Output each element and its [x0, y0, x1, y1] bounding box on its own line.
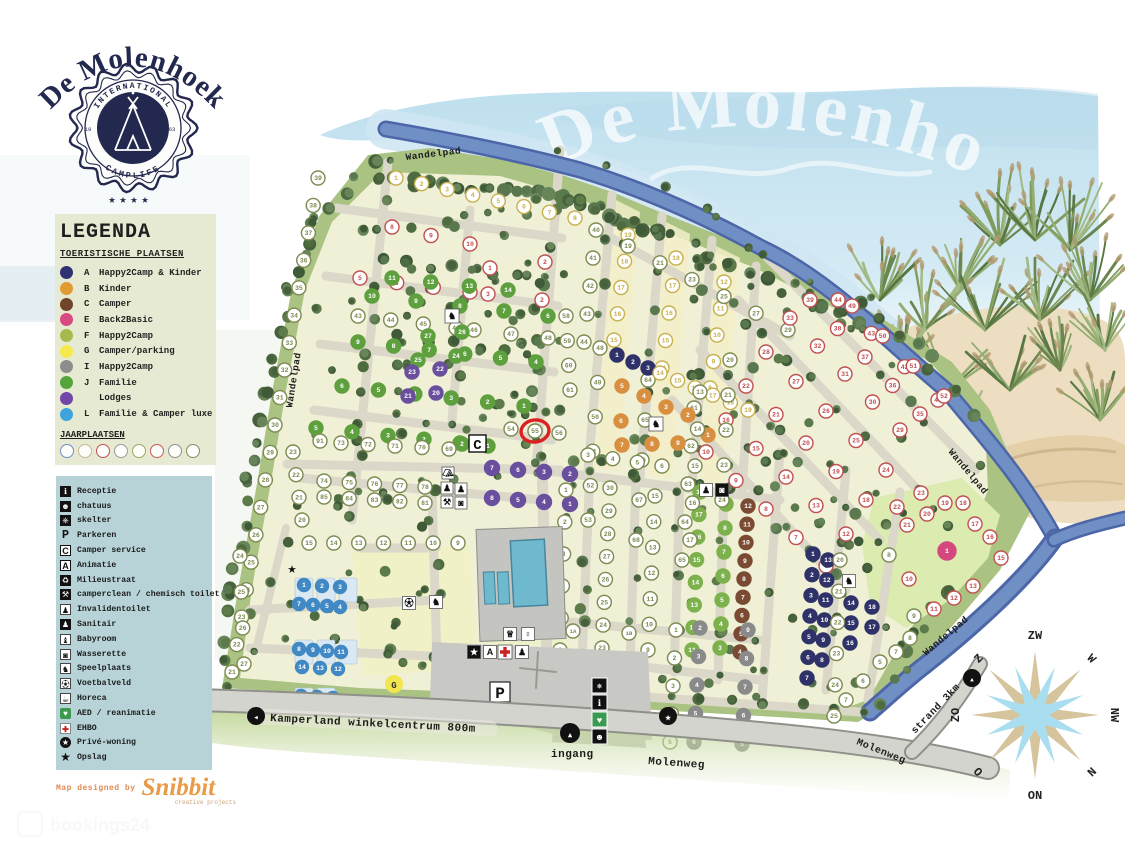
- svg-text:8: 8: [490, 495, 494, 502]
- svg-text:1: 1: [568, 501, 572, 508]
- svg-text:83: 83: [371, 497, 379, 504]
- svg-text:34: 34: [290, 312, 298, 319]
- svg-text:27: 27: [424, 333, 432, 340]
- svg-text:6: 6: [861, 678, 865, 685]
- svg-text:44: 44: [834, 297, 842, 304]
- svg-text:60: 60: [565, 362, 573, 369]
- svg-text:★: ★: [470, 647, 479, 657]
- svg-text:15: 15: [997, 555, 1005, 562]
- svg-text:33: 33: [786, 315, 794, 322]
- svg-text:9: 9: [746, 627, 750, 634]
- svg-text:32: 32: [814, 343, 822, 350]
- svg-text:22: 22: [893, 504, 901, 511]
- svg-text:6: 6: [522, 204, 526, 211]
- svg-text:41: 41: [589, 255, 597, 262]
- svg-text:5: 5: [878, 659, 882, 666]
- svg-text:20: 20: [923, 511, 931, 518]
- svg-text:4: 4: [695, 682, 699, 689]
- svg-text:26: 26: [239, 625, 247, 632]
- svg-text:23: 23: [917, 490, 925, 497]
- svg-text:11: 11: [646, 596, 654, 603]
- svg-text:14: 14: [330, 540, 338, 547]
- svg-text:23: 23: [688, 277, 696, 284]
- svg-text:75: 75: [345, 480, 353, 487]
- svg-text:9: 9: [712, 359, 716, 366]
- svg-text:59: 59: [563, 338, 571, 345]
- svg-text:27: 27: [792, 379, 800, 386]
- svg-text:2: 2: [320, 583, 324, 590]
- svg-text:21: 21: [656, 260, 664, 267]
- svg-text:2: 2: [568, 471, 572, 478]
- svg-text:16: 16: [689, 500, 697, 507]
- svg-text:6: 6: [516, 467, 520, 474]
- svg-text:14: 14: [656, 370, 664, 377]
- svg-text:73: 73: [337, 440, 345, 447]
- svg-text:ingang: ingang: [551, 749, 594, 761]
- svg-text:20: 20: [836, 557, 844, 564]
- svg-text:38: 38: [834, 326, 842, 333]
- svg-text:6: 6: [721, 573, 725, 580]
- svg-text:69: 69: [445, 446, 453, 453]
- svg-text:2: 2: [673, 655, 677, 662]
- svg-text:7: 7: [844, 697, 848, 704]
- svg-text:2: 2: [686, 412, 690, 419]
- svg-text:1: 1: [945, 548, 949, 555]
- svg-text:36: 36: [889, 383, 897, 390]
- svg-text:22: 22: [292, 472, 300, 479]
- svg-text:29: 29: [896, 427, 904, 434]
- svg-text:24: 24: [452, 353, 460, 360]
- svg-text:4: 4: [350, 429, 354, 436]
- svg-text:5: 5: [325, 603, 329, 610]
- svg-text:12: 12: [744, 503, 752, 510]
- svg-text:13: 13: [316, 665, 324, 672]
- svg-text:28: 28: [604, 531, 612, 538]
- svg-text:3: 3: [664, 404, 668, 411]
- svg-text:29: 29: [605, 508, 613, 515]
- svg-text:37: 37: [304, 230, 312, 237]
- svg-text:63: 63: [169, 126, 176, 133]
- svg-text:3: 3: [671, 683, 675, 690]
- svg-text:10: 10: [429, 540, 437, 547]
- svg-text:6: 6: [660, 463, 664, 470]
- svg-text:25: 25: [247, 559, 255, 566]
- svg-text:15: 15: [674, 378, 682, 385]
- svg-text:♞: ♞: [432, 597, 440, 607]
- svg-text:3: 3: [386, 433, 390, 440]
- svg-text:64: 64: [681, 519, 689, 526]
- svg-text:26: 26: [822, 408, 830, 415]
- svg-text:2: 2: [810, 572, 814, 579]
- svg-text:ℹ: ℹ: [598, 699, 602, 709]
- svg-text:P: P: [495, 685, 505, 703]
- svg-text:10: 10: [905, 576, 913, 583]
- svg-text:8: 8: [908, 635, 912, 642]
- svg-text:4: 4: [808, 613, 812, 620]
- svg-text:31: 31: [841, 371, 849, 378]
- svg-text:♟︎: ♟︎: [457, 484, 465, 494]
- svg-text:6: 6: [546, 313, 550, 320]
- svg-text:40: 40: [592, 227, 600, 234]
- svg-text:30: 30: [869, 399, 877, 406]
- svg-text:7: 7: [297, 601, 301, 608]
- svg-text:25: 25: [720, 294, 728, 301]
- svg-text:3: 3: [646, 365, 650, 372]
- svg-text:1: 1: [706, 432, 710, 439]
- svg-text:3: 3: [486, 291, 490, 298]
- svg-text:17: 17: [868, 624, 876, 631]
- svg-text:17: 17: [971, 521, 979, 528]
- svg-text:13: 13: [465, 283, 473, 290]
- svg-text:6: 6: [806, 654, 810, 661]
- svg-text:39: 39: [314, 175, 322, 182]
- svg-text:A: A: [487, 647, 494, 657]
- svg-text:25: 25: [414, 357, 422, 364]
- svg-text:14: 14: [782, 474, 790, 481]
- svg-text:8: 8: [745, 656, 749, 663]
- svg-text:7: 7: [743, 684, 747, 691]
- svg-text:47: 47: [507, 331, 515, 338]
- svg-text:14: 14: [694, 426, 702, 433]
- svg-text:8: 8: [392, 343, 396, 350]
- svg-text:9: 9: [734, 478, 738, 485]
- svg-text:1: 1: [302, 582, 306, 589]
- svg-text:19: 19: [832, 469, 840, 476]
- svg-text:♞: ♞: [845, 576, 853, 586]
- svg-text:11: 11: [930, 606, 938, 613]
- svg-text:32: 32: [281, 367, 289, 374]
- svg-text:14: 14: [298, 664, 306, 671]
- svg-text:31: 31: [276, 395, 284, 402]
- svg-text:20: 20: [298, 517, 306, 524]
- svg-text:11: 11: [717, 306, 725, 313]
- svg-text:18: 18: [959, 500, 967, 507]
- svg-text:76: 76: [371, 481, 379, 488]
- svg-text:52: 52: [940, 393, 948, 400]
- svg-text:21: 21: [835, 588, 843, 595]
- svg-text:13: 13: [696, 389, 704, 396]
- svg-text:24: 24: [831, 682, 839, 689]
- svg-text:12: 12: [823, 577, 831, 584]
- svg-text:49: 49: [594, 380, 602, 387]
- svg-text:5: 5: [376, 387, 380, 394]
- svg-text:23: 23: [408, 369, 416, 376]
- svg-text:9: 9: [429, 233, 433, 240]
- svg-text:15: 15: [651, 493, 659, 500]
- svg-text:91: 91: [316, 438, 324, 445]
- svg-text:★: ★: [119, 193, 126, 207]
- svg-text:4: 4: [542, 499, 546, 506]
- svg-text:25: 25: [852, 438, 860, 445]
- svg-text:15: 15: [305, 540, 313, 547]
- svg-text:23: 23: [720, 462, 728, 469]
- svg-text:♞: ♞: [652, 419, 660, 429]
- svg-text:22: 22: [742, 383, 750, 390]
- svg-text:★: ★: [287, 561, 296, 578]
- svg-text:6: 6: [742, 713, 746, 720]
- svg-text:10: 10: [466, 241, 474, 248]
- svg-text:4: 4: [338, 604, 342, 611]
- svg-text:82: 82: [396, 499, 404, 506]
- svg-text:1: 1: [564, 487, 568, 494]
- svg-text:2: 2: [631, 359, 635, 366]
- svg-text:3: 3: [809, 592, 813, 599]
- svg-text:5: 5: [720, 597, 724, 604]
- svg-text:⚒︎: ⚒︎: [443, 497, 451, 507]
- svg-text:14: 14: [504, 287, 512, 294]
- svg-text:5: 5: [516, 497, 520, 504]
- svg-text:12: 12: [334, 666, 342, 673]
- svg-text:37: 37: [861, 354, 869, 361]
- svg-text:4: 4: [611, 456, 615, 463]
- svg-text:19: 19: [624, 243, 632, 250]
- svg-text:▴: ▴: [567, 730, 574, 742]
- svg-text:54: 54: [507, 426, 515, 433]
- svg-text:♥: ♥: [597, 716, 602, 726]
- svg-text:10: 10: [645, 621, 653, 628]
- svg-text:⚽︎: ⚽︎: [404, 597, 413, 608]
- svg-text:84: 84: [345, 496, 353, 503]
- svg-text:12: 12: [380, 540, 388, 547]
- svg-text:13: 13: [649, 544, 657, 551]
- svg-text:24: 24: [236, 553, 244, 560]
- svg-text:26: 26: [458, 329, 466, 336]
- svg-text:21: 21: [295, 494, 303, 501]
- svg-text:27: 27: [240, 661, 248, 668]
- svg-text:4: 4: [642, 393, 646, 400]
- svg-text:7: 7: [805, 675, 809, 682]
- svg-text:16: 16: [846, 640, 854, 647]
- svg-text:27: 27: [603, 554, 611, 561]
- svg-text:39: 39: [806, 297, 814, 304]
- svg-text:15: 15: [693, 557, 701, 564]
- svg-text:58: 58: [562, 313, 570, 320]
- svg-text:43: 43: [583, 311, 591, 318]
- svg-text:16: 16: [614, 311, 622, 318]
- svg-text:8: 8: [297, 646, 301, 653]
- svg-text:74: 74: [320, 478, 328, 485]
- svg-text:12: 12: [842, 531, 850, 538]
- svg-text:20: 20: [432, 390, 440, 397]
- svg-text:21: 21: [724, 392, 732, 399]
- svg-text:18: 18: [621, 258, 629, 265]
- svg-text:63: 63: [684, 481, 692, 488]
- svg-text:11: 11: [388, 275, 396, 282]
- svg-text:4: 4: [471, 192, 475, 199]
- svg-text:21: 21: [772, 412, 780, 419]
- svg-text:12: 12: [950, 595, 958, 602]
- svg-text:5: 5: [496, 198, 500, 205]
- svg-text:4: 4: [534, 359, 538, 366]
- svg-text:16: 16: [986, 534, 994, 541]
- svg-text:43: 43: [867, 330, 875, 337]
- svg-text:10: 10: [368, 293, 376, 300]
- svg-text:1: 1: [488, 265, 492, 272]
- svg-text:♞: ♞: [448, 311, 456, 321]
- svg-text:72: 72: [364, 442, 372, 449]
- svg-text:22: 22: [834, 620, 842, 627]
- svg-text:6: 6: [619, 418, 623, 425]
- svg-text:NW: NW: [1107, 708, 1121, 723]
- svg-text:64: 64: [644, 377, 652, 384]
- svg-text:10: 10: [323, 648, 331, 655]
- svg-text:15: 15: [691, 463, 699, 470]
- svg-text:65: 65: [641, 417, 649, 424]
- svg-text:20: 20: [726, 357, 734, 364]
- svg-text:17: 17: [669, 283, 677, 290]
- svg-text:11: 11: [743, 521, 751, 528]
- svg-text:♟︎: ♟︎: [518, 647, 526, 657]
- svg-text:50: 50: [879, 333, 887, 340]
- svg-text:3: 3: [445, 187, 449, 194]
- svg-text:12: 12: [648, 570, 656, 577]
- svg-text:44: 44: [387, 317, 395, 324]
- svg-text:44: 44: [580, 339, 588, 346]
- svg-text:6: 6: [740, 613, 744, 620]
- svg-text:2: 2: [486, 399, 490, 406]
- svg-text:52: 52: [586, 483, 594, 490]
- svg-text:6: 6: [311, 602, 315, 609]
- svg-text:23: 23: [289, 449, 297, 456]
- svg-text:28: 28: [261, 477, 269, 484]
- svg-text:62: 62: [687, 443, 695, 450]
- svg-text:9: 9: [821, 637, 825, 644]
- svg-text:29: 29: [784, 327, 792, 334]
- svg-text:53: 53: [584, 517, 592, 524]
- svg-text:7: 7: [722, 549, 726, 556]
- svg-text:12: 12: [720, 279, 728, 286]
- svg-text:7: 7: [547, 209, 551, 216]
- svg-text:9: 9: [311, 647, 315, 654]
- svg-text:29: 29: [266, 450, 274, 457]
- svg-text:7: 7: [620, 442, 624, 449]
- svg-text:17: 17: [686, 537, 694, 544]
- svg-text:♀: ♀: [525, 629, 532, 639]
- svg-text:18: 18: [672, 255, 680, 262]
- svg-text:8: 8: [650, 441, 654, 448]
- svg-text:13: 13: [969, 583, 977, 590]
- svg-text:68: 68: [632, 537, 640, 544]
- svg-text:22: 22: [233, 642, 241, 649]
- svg-text:2: 2: [460, 441, 464, 448]
- svg-text:2: 2: [420, 181, 424, 188]
- svg-text:85: 85: [320, 494, 328, 501]
- svg-text:20: 20: [802, 440, 810, 447]
- svg-text:81: 81: [421, 500, 429, 507]
- svg-text:27: 27: [257, 504, 265, 511]
- svg-text:◙: ◙: [719, 485, 725, 495]
- svg-text:N: N: [1084, 764, 1099, 779]
- svg-text:11: 11: [822, 597, 830, 604]
- svg-text:78: 78: [421, 484, 429, 491]
- svg-text:2: 2: [563, 519, 567, 526]
- svg-text:◂: ◂: [253, 713, 258, 723]
- svg-text:W: W: [1084, 651, 1100, 667]
- svg-text:77: 77: [396, 483, 404, 490]
- svg-text:13: 13: [824, 557, 832, 564]
- svg-text:4: 4: [719, 621, 723, 628]
- svg-text:7: 7: [894, 649, 898, 656]
- svg-text:19: 19: [85, 126, 92, 133]
- svg-text:70: 70: [418, 445, 426, 452]
- svg-text:23: 23: [832, 651, 840, 658]
- svg-text:8: 8: [887, 552, 891, 559]
- svg-text:3: 3: [718, 645, 722, 652]
- svg-text:8: 8: [390, 224, 394, 231]
- svg-text:10: 10: [820, 617, 828, 624]
- svg-text:26: 26: [252, 532, 260, 539]
- svg-text:17: 17: [709, 392, 717, 399]
- svg-text:▴: ▴: [969, 675, 974, 685]
- svg-text:38: 38: [309, 203, 317, 210]
- svg-text:5: 5: [620, 383, 624, 390]
- svg-text:46: 46: [470, 327, 478, 334]
- svg-text:ZO: ZO: [949, 708, 963, 722]
- svg-text:5: 5: [807, 634, 811, 641]
- svg-text:14: 14: [847, 600, 855, 607]
- svg-text:17: 17: [695, 512, 703, 519]
- svg-text:ZW: ZW: [1028, 629, 1043, 643]
- svg-text:10: 10: [702, 449, 710, 456]
- svg-text:48: 48: [596, 345, 604, 352]
- svg-text:28: 28: [762, 349, 770, 356]
- svg-text:21: 21: [903, 522, 911, 529]
- svg-text:23: 23: [238, 614, 246, 621]
- svg-text:67: 67: [635, 497, 643, 504]
- svg-text:15: 15: [752, 446, 760, 453]
- svg-text:10: 10: [742, 540, 750, 547]
- svg-text:13: 13: [690, 602, 698, 609]
- svg-text:30: 30: [606, 485, 614, 492]
- svg-text:22: 22: [722, 427, 730, 434]
- svg-text:3: 3: [542, 469, 546, 476]
- svg-text:9: 9: [743, 558, 747, 565]
- svg-text:1B: 1B: [626, 630, 633, 637]
- svg-text:24: 24: [882, 467, 890, 474]
- svg-text:3: 3: [338, 584, 342, 591]
- svg-text:25: 25: [830, 713, 838, 720]
- svg-text:9: 9: [456, 540, 460, 547]
- svg-text:2: 2: [698, 625, 702, 632]
- svg-text:5: 5: [498, 355, 502, 362]
- svg-text:6: 6: [340, 383, 344, 390]
- svg-text:30: 30: [271, 422, 279, 429]
- svg-text:★: ★: [108, 193, 115, 207]
- svg-text:5: 5: [635, 459, 639, 466]
- svg-text:☻: ☻: [597, 733, 603, 743]
- svg-text:9: 9: [912, 613, 916, 620]
- svg-text:51: 51: [909, 363, 917, 370]
- svg-text:8: 8: [742, 576, 746, 583]
- svg-text:1: 1: [615, 352, 619, 359]
- svg-text:★: ★: [141, 193, 148, 207]
- svg-text:♟︎: ♟︎: [443, 483, 451, 493]
- svg-text:17: 17: [617, 285, 625, 292]
- svg-text:15: 15: [610, 337, 618, 344]
- svg-text:1: 1: [674, 627, 678, 634]
- svg-text:45: 45: [419, 321, 427, 328]
- svg-text:18: 18: [862, 497, 870, 504]
- svg-text:11: 11: [337, 649, 345, 656]
- svg-text:48: 48: [544, 335, 552, 342]
- svg-text:15: 15: [662, 338, 670, 345]
- svg-text:3: 3: [586, 452, 590, 459]
- svg-text:18: 18: [868, 604, 876, 611]
- svg-text:8: 8: [764, 506, 768, 513]
- svg-text:11: 11: [404, 540, 412, 547]
- svg-text:⎈: ⎈: [597, 682, 603, 692]
- svg-text:19: 19: [941, 500, 949, 507]
